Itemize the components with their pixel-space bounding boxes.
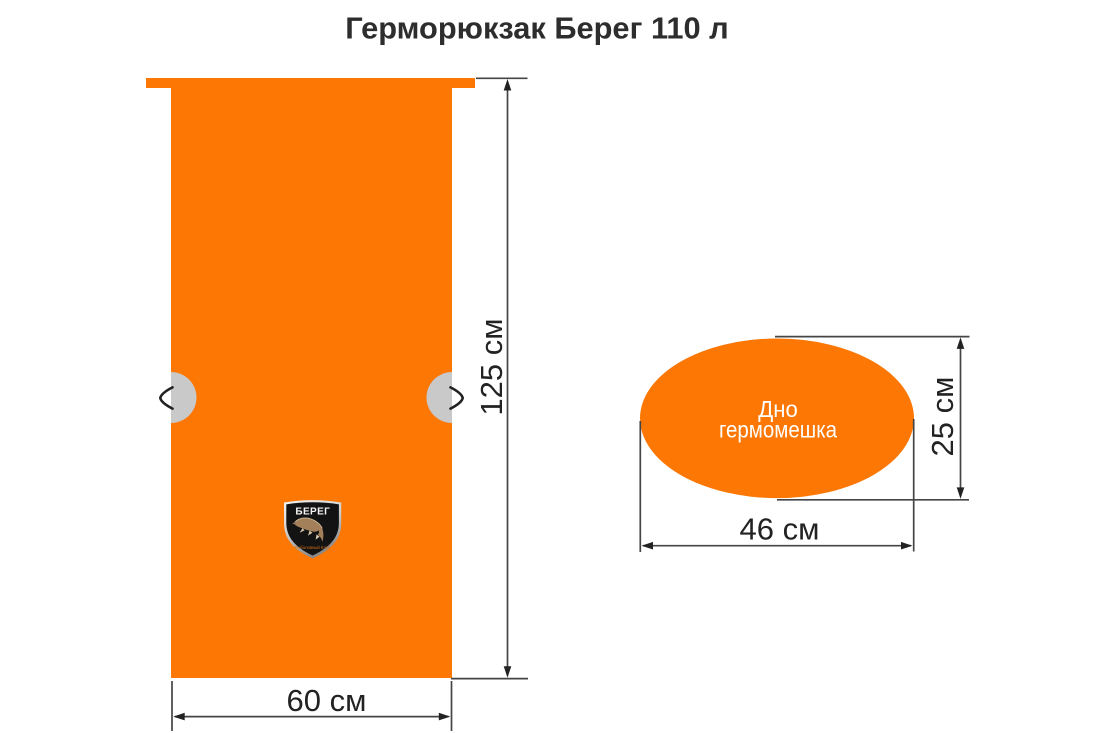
svg-text:БЕРЕГ: БЕРЕГ (295, 507, 330, 518)
svg-text:гермомешка: гермомешка (719, 417, 838, 443)
svg-text:Герморюкзак Берег 110 л: Герморюкзак Берег 110 л (345, 11, 729, 46)
svg-text:125 см: 125 см (474, 318, 509, 415)
svg-text:Рыболовный Клуб: Рыболовный Клуб (295, 545, 331, 550)
svg-text:25 см: 25 см (925, 377, 960, 457)
svg-text:60 см: 60 см (287, 683, 367, 718)
svg-text:46 см: 46 см (740, 512, 820, 547)
